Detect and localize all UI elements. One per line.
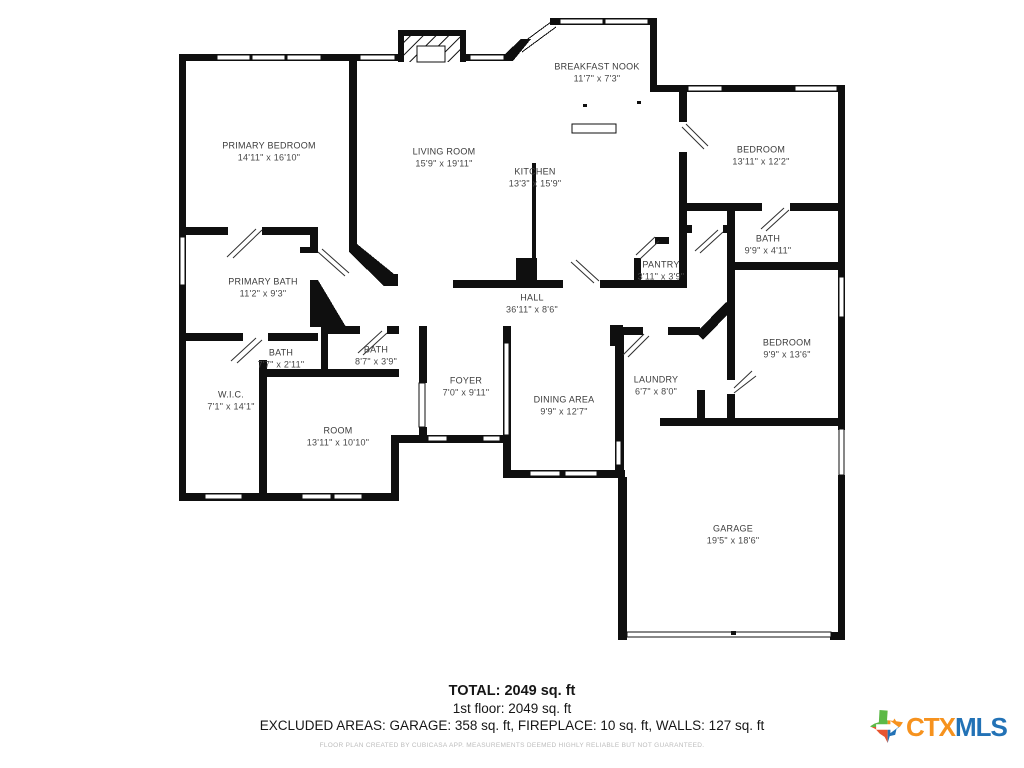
exterior-walls bbox=[179, 18, 845, 640]
windows bbox=[180, 19, 844, 637]
ctxmls-logo: CTXMLS bbox=[870, 708, 1007, 746]
interior-walls bbox=[186, 54, 845, 501]
logo-wordmark: CTXMLS bbox=[906, 712, 1007, 743]
floor-plan-drawing bbox=[0, 0, 1024, 768]
floor-plan-page: BREAKFAST NOOK11'7" x 7'3"PRIMARY BEDROO… bbox=[0, 0, 1024, 768]
fireplace bbox=[398, 30, 466, 62]
total-area-text: TOTAL: 2049 sq. ft bbox=[0, 683, 1024, 699]
dimension-ticks bbox=[583, 101, 736, 635]
logo-ctx: CTX bbox=[906, 712, 955, 742]
kitchen-island bbox=[572, 124, 616, 133]
texas-state-icon bbox=[870, 708, 904, 746]
garage-door bbox=[627, 632, 831, 637]
logo-mls: MLS bbox=[955, 712, 1007, 742]
